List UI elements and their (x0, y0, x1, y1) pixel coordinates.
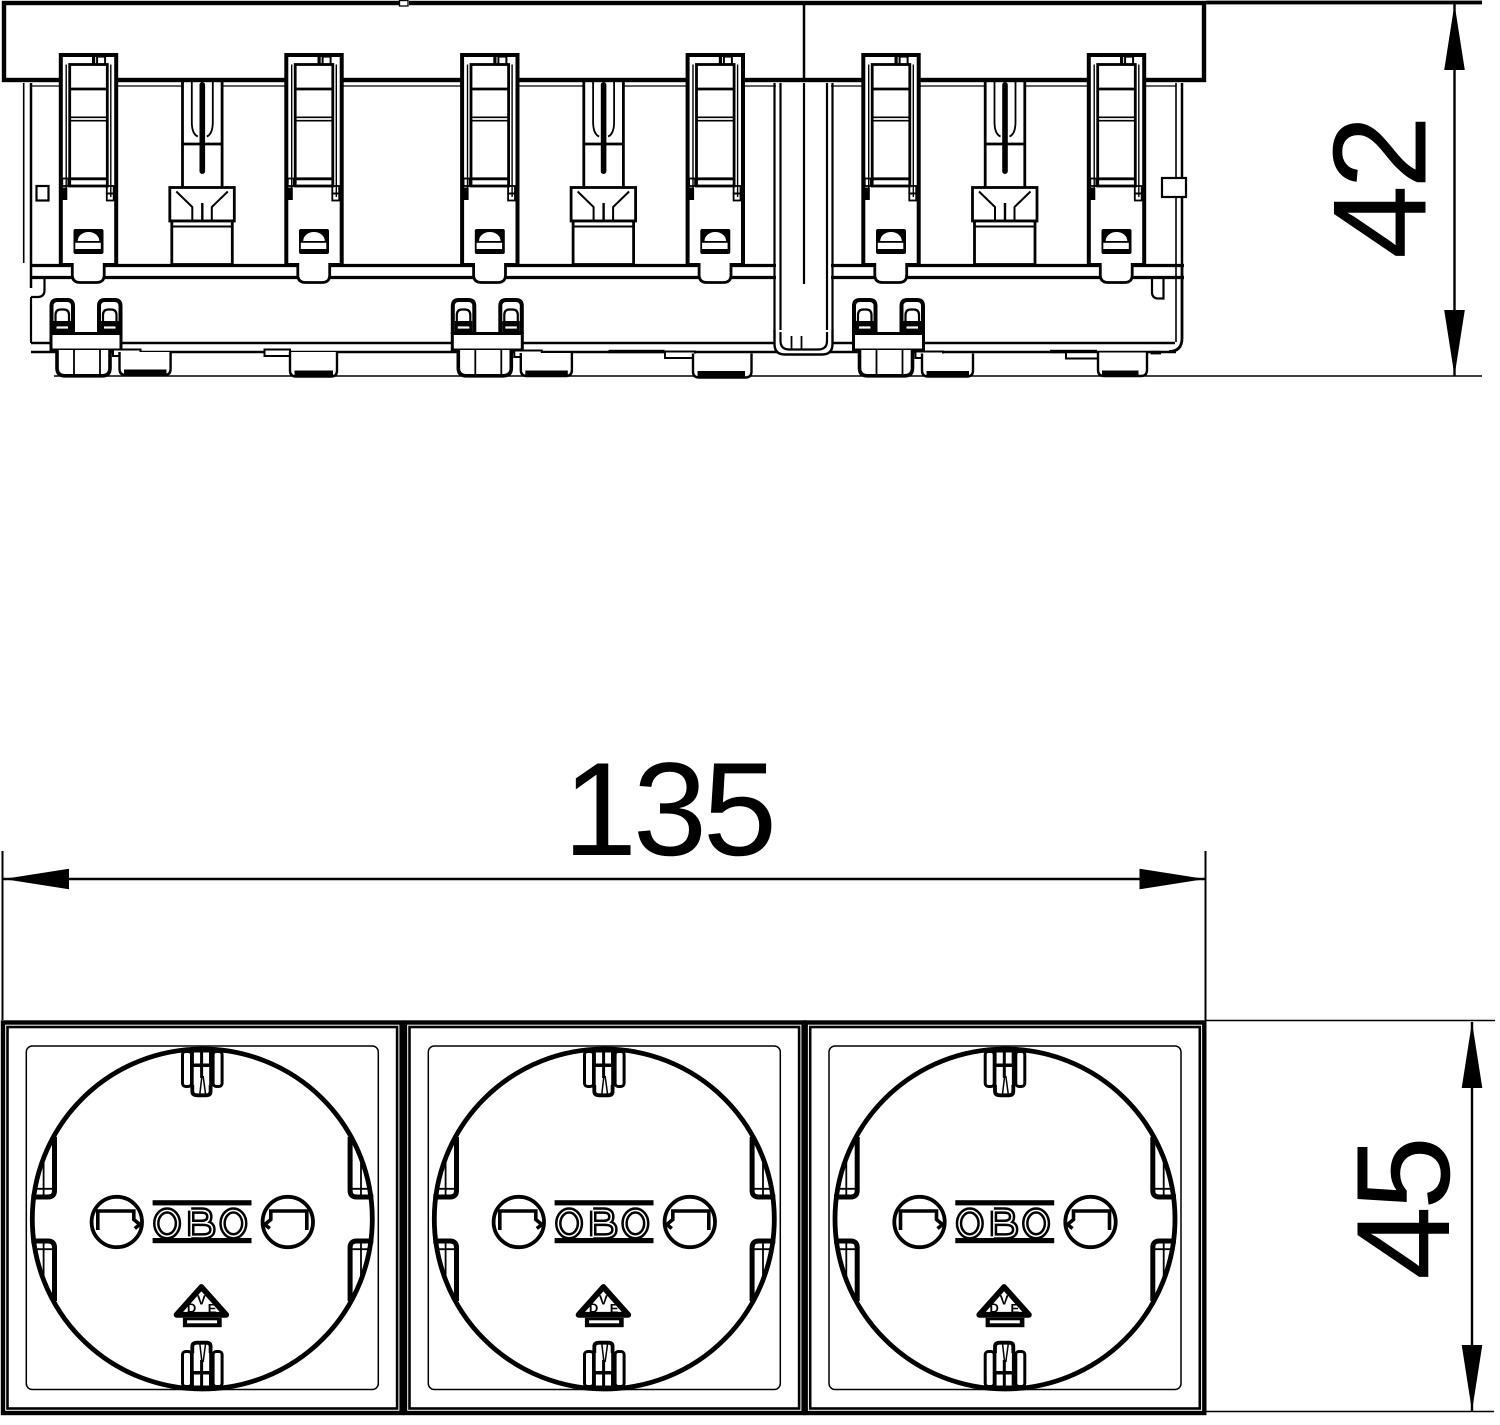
svg-text:42: 42 (1307, 119, 1455, 259)
svg-text:45: 45 (1330, 1140, 1478, 1280)
svg-text:135: 135 (563, 736, 773, 884)
